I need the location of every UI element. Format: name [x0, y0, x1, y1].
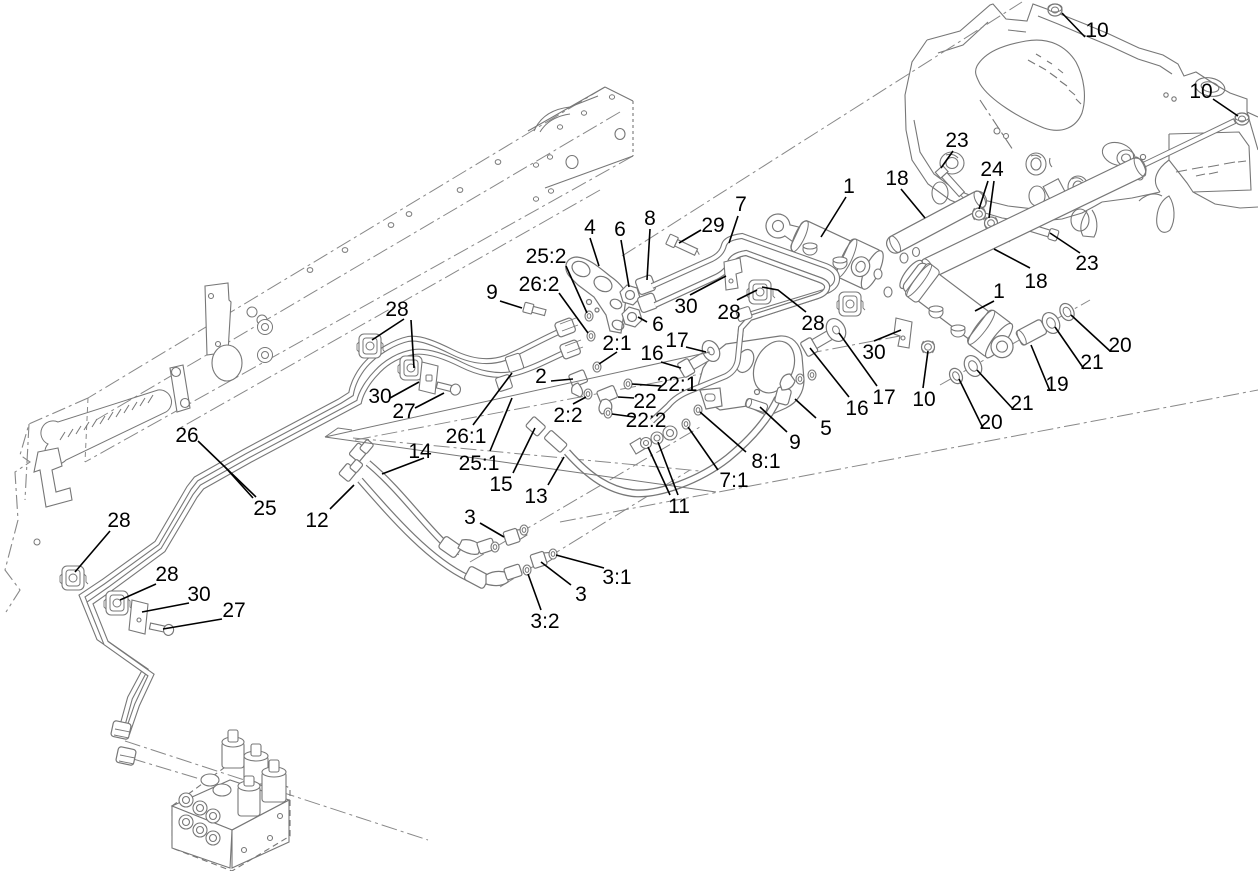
svg-text:1: 1 — [843, 175, 855, 198]
svg-text:26:2: 26:2 — [519, 273, 560, 296]
svg-text:5: 5 — [820, 417, 832, 440]
svg-text:9: 9 — [486, 281, 498, 304]
svg-text:20: 20 — [979, 411, 1002, 434]
svg-text:21: 21 — [1010, 392, 1033, 415]
svg-text:3:1: 3:1 — [602, 566, 631, 589]
svg-text:28: 28 — [385, 298, 408, 321]
svg-text:6: 6 — [614, 218, 626, 241]
svg-text:28: 28 — [155, 563, 178, 586]
svg-text:23: 23 — [945, 129, 968, 152]
svg-text:20: 20 — [1108, 334, 1131, 357]
svg-text:18: 18 — [1024, 270, 1047, 293]
svg-text:30: 30 — [674, 295, 697, 318]
svg-text:30: 30 — [368, 385, 391, 408]
svg-text:23: 23 — [1075, 252, 1098, 275]
svg-text:11: 11 — [668, 495, 690, 518]
svg-text:18: 18 — [885, 167, 908, 190]
svg-text:3: 3 — [575, 583, 587, 606]
svg-text:6: 6 — [652, 313, 664, 336]
svg-text:10: 10 — [912, 388, 935, 411]
svg-text:25:1: 25:1 — [459, 452, 500, 475]
svg-text:17: 17 — [872, 386, 895, 409]
svg-text:13: 13 — [524, 485, 547, 508]
svg-text:2: 2 — [535, 365, 547, 388]
svg-text:21: 21 — [1080, 351, 1103, 374]
svg-text:7:1: 7:1 — [719, 469, 748, 492]
svg-text:2:2: 2:2 — [553, 404, 582, 427]
svg-text:29: 29 — [701, 214, 724, 237]
svg-text:4: 4 — [584, 216, 596, 239]
svg-text:12: 12 — [305, 509, 328, 532]
svg-text:30: 30 — [862, 341, 885, 364]
svg-text:22:2: 22:2 — [626, 409, 667, 432]
svg-text:27: 27 — [392, 400, 415, 423]
svg-text:25: 25 — [253, 497, 276, 520]
svg-text:10: 10 — [1189, 80, 1212, 103]
svg-text:22:1: 22:1 — [657, 373, 698, 396]
svg-text:3: 3 — [464, 506, 476, 529]
svg-text:28: 28 — [717, 301, 740, 324]
svg-text:8:1: 8:1 — [751, 450, 780, 473]
svg-text:26:1: 26:1 — [446, 425, 487, 448]
svg-text:14: 14 — [408, 440, 432, 463]
svg-text:30: 30 — [187, 583, 210, 606]
svg-text:16: 16 — [640, 342, 663, 365]
svg-text:27: 27 — [222, 599, 245, 622]
svg-text:2:1: 2:1 — [602, 332, 631, 355]
svg-text:19: 19 — [1045, 373, 1068, 396]
svg-text:8: 8 — [644, 207, 656, 230]
svg-text:16: 16 — [845, 397, 868, 420]
svg-text:26: 26 — [175, 424, 198, 447]
svg-text:3:2: 3:2 — [530, 610, 559, 633]
svg-text:15: 15 — [489, 473, 512, 496]
svg-text:25:2: 25:2 — [526, 245, 567, 268]
svg-text:7: 7 — [735, 193, 747, 216]
svg-text:28: 28 — [801, 312, 824, 335]
svg-text:1: 1 — [993, 280, 1005, 303]
svg-text:10: 10 — [1085, 19, 1108, 42]
svg-text:9: 9 — [789, 431, 801, 454]
svg-text:24: 24 — [980, 158, 1004, 181]
svg-text:28: 28 — [107, 509, 130, 532]
svg-text:17: 17 — [665, 329, 688, 352]
